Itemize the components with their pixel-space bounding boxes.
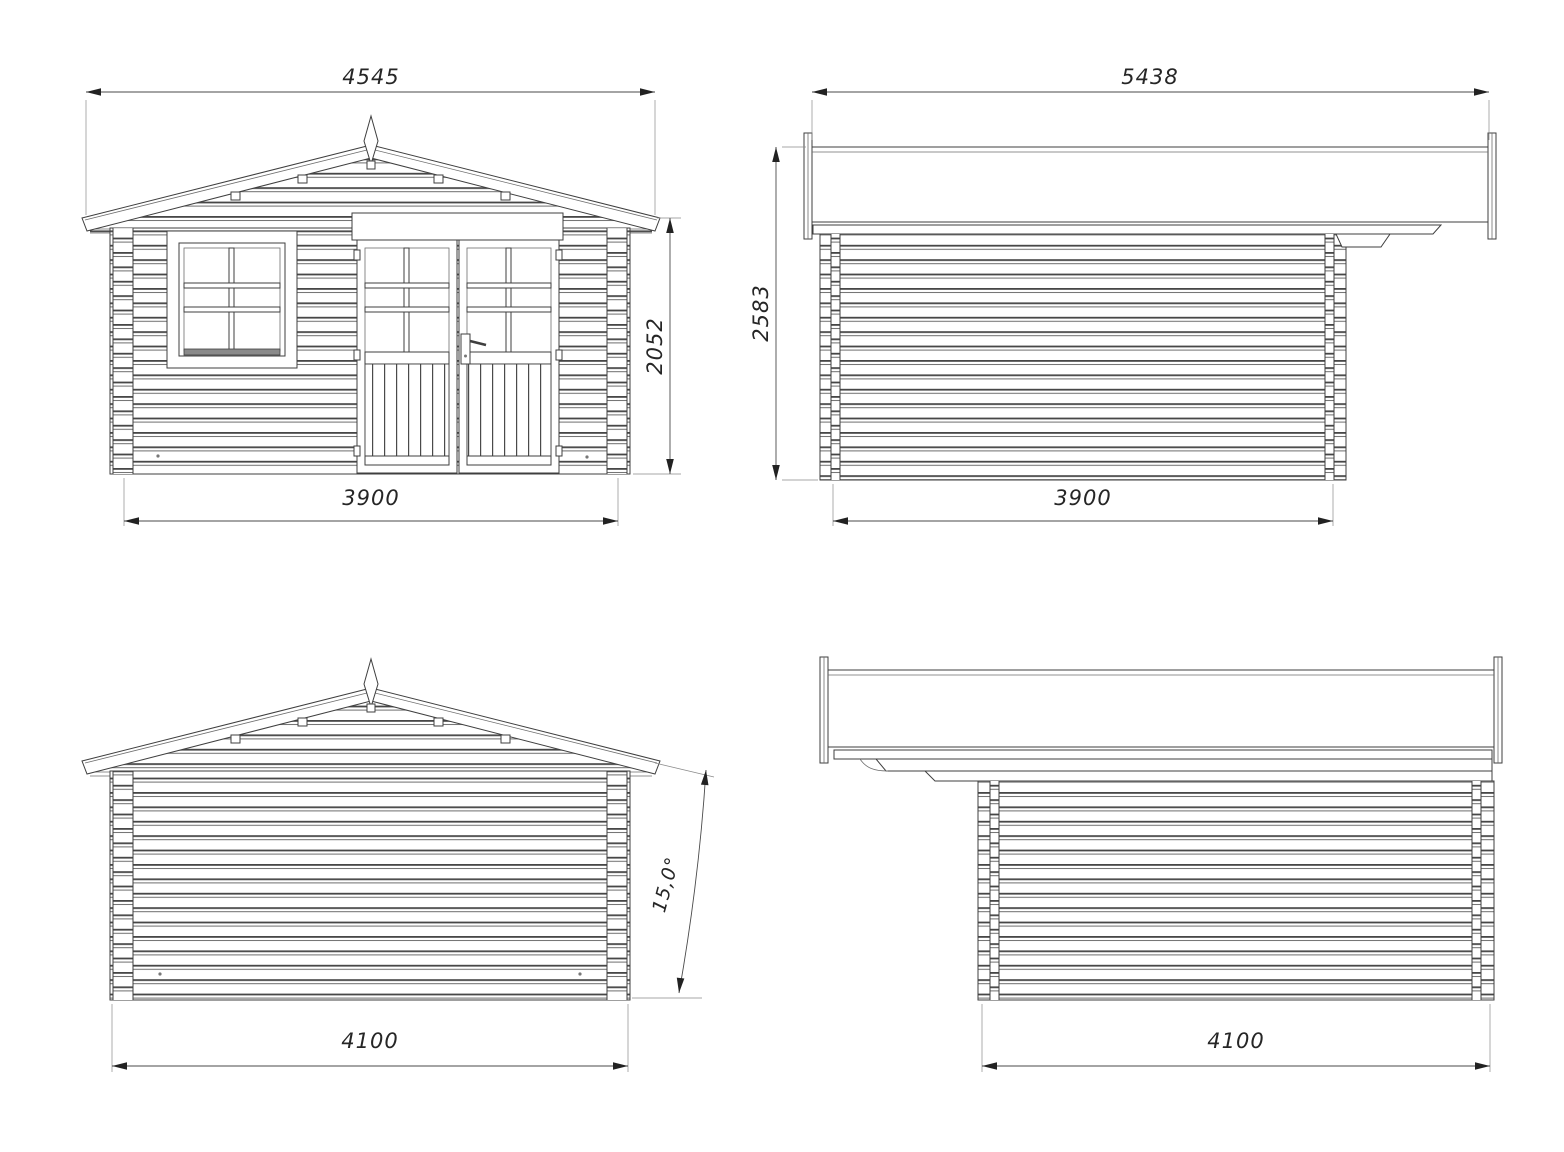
door-hinge bbox=[556, 250, 562, 260]
front-gable-overhang-board bbox=[876, 759, 1492, 771]
rafter-tab bbox=[298, 718, 307, 726]
door-bottom-rail bbox=[365, 456, 449, 465]
rear-elevation-view: 4100 15,0° bbox=[82, 659, 714, 1072]
front-window bbox=[167, 231, 297, 368]
door-hinge bbox=[556, 446, 562, 456]
dim-label-rear-width-bottom: 4100 bbox=[341, 1029, 398, 1053]
door-mid-rail bbox=[467, 352, 551, 364]
dim-side-a-width-top: 5438 bbox=[812, 65, 1489, 140]
dim-side-b-width-bottom: 4100 bbox=[982, 1004, 1490, 1072]
front-vent-dot-left bbox=[156, 454, 159, 457]
front-elevation-view: 4545 2052 3900 bbox=[82, 65, 681, 526]
door-left bbox=[354, 240, 457, 473]
rafter-tab bbox=[434, 175, 443, 183]
door-mid-rail bbox=[365, 352, 449, 364]
door-header-trim bbox=[352, 213, 563, 240]
dim-label-side-a-height: 2583 bbox=[749, 284, 773, 341]
side-b-corner-logs-left bbox=[990, 781, 999, 1000]
door-slat-panel bbox=[467, 364, 551, 456]
front-corner-logs-left bbox=[113, 228, 133, 474]
side-elevation-a-view: 5438 2583 3900 bbox=[749, 65, 1496, 526]
door-glazing-bar bbox=[404, 248, 409, 352]
door-glazing-bar bbox=[467, 307, 551, 312]
front-corner-logs-right bbox=[607, 228, 627, 474]
rafter-tab bbox=[298, 175, 307, 183]
door-hinge bbox=[354, 250, 360, 260]
door-hinge bbox=[354, 446, 360, 456]
door-right bbox=[459, 240, 562, 473]
dim-label-side-a-width-bottom: 3900 bbox=[1054, 486, 1111, 510]
rear-corner-logs-left bbox=[113, 771, 133, 1000]
door-glazing-bar bbox=[467, 283, 551, 288]
side-a-corner-logs-right bbox=[1325, 234, 1334, 480]
ridge-finial-base bbox=[367, 704, 375, 712]
door-bottom-rail bbox=[467, 456, 551, 465]
eave-board bbox=[834, 750, 1492, 759]
window-sill bbox=[184, 349, 280, 355]
front-vent-dot-right bbox=[585, 455, 588, 458]
roof-slab bbox=[828, 670, 1494, 747]
rafter-tab bbox=[434, 718, 443, 726]
eave-board bbox=[813, 225, 1441, 234]
dim-front-height: 2052 bbox=[633, 218, 681, 474]
dim-label-side-a-width-top: 5438 bbox=[1121, 65, 1178, 89]
side-a-roof bbox=[804, 133, 1496, 239]
side-elevation-b-view: 4100 bbox=[820, 657, 1502, 1072]
rafter-tab bbox=[231, 192, 240, 200]
dim-roof-angle: 15,0° bbox=[632, 763, 714, 998]
ridge-finial-base bbox=[367, 161, 375, 169]
side-a-wall bbox=[820, 234, 1346, 480]
rafter-tab bbox=[231, 735, 240, 743]
door-glazing-bar bbox=[365, 283, 449, 288]
rear-vent-dot-left bbox=[158, 972, 161, 975]
rear-wall bbox=[110, 771, 630, 1000]
drawing-sheet: 4545 2052 3900 bbox=[0, 0, 1564, 1152]
dim-label-front-width-bottom: 3900 bbox=[342, 486, 399, 510]
door-glazing-bar bbox=[365, 307, 449, 312]
door-slat-panel bbox=[365, 364, 449, 456]
rafter-tab bbox=[501, 735, 510, 743]
front-double-door bbox=[352, 213, 563, 473]
front-gable-overhang-board-2 bbox=[925, 771, 1492, 781]
roof-slab bbox=[812, 147, 1488, 222]
dim-label-side-b-width-bottom: 4100 bbox=[1207, 1029, 1264, 1053]
side-b-corner-logs-right bbox=[1472, 781, 1481, 1000]
side-b-roof bbox=[820, 657, 1502, 781]
rear-corner-logs-right bbox=[607, 771, 627, 1000]
window-glazing-bar bbox=[184, 283, 280, 288]
door-hinge bbox=[556, 350, 562, 360]
elevation-drawing: 4545 2052 3900 bbox=[0, 0, 1564, 1152]
side-b-wall bbox=[978, 781, 1494, 1000]
dim-label-front-height: 2052 bbox=[643, 317, 667, 374]
dim-rear-width-bottom: 4100 bbox=[112, 1004, 628, 1072]
door-glazing-bar bbox=[506, 248, 511, 352]
rear-vent-dot-right bbox=[578, 972, 581, 975]
dim-label-roof-angle: 15,0° bbox=[648, 854, 684, 915]
side-a-corner-logs-left bbox=[831, 234, 840, 480]
window-mullion bbox=[229, 248, 234, 351]
dim-side-a-width-bottom: 3900 bbox=[833, 484, 1333, 526]
door-hinge bbox=[354, 350, 360, 360]
dim-front-width-bottom: 3900 bbox=[124, 478, 618, 526]
front-gable-overhang-board bbox=[1336, 234, 1390, 247]
window-glazing-bar bbox=[184, 307, 280, 312]
dim-label-front-width-top: 4545 bbox=[342, 65, 399, 89]
rafter-tab bbox=[501, 192, 510, 200]
